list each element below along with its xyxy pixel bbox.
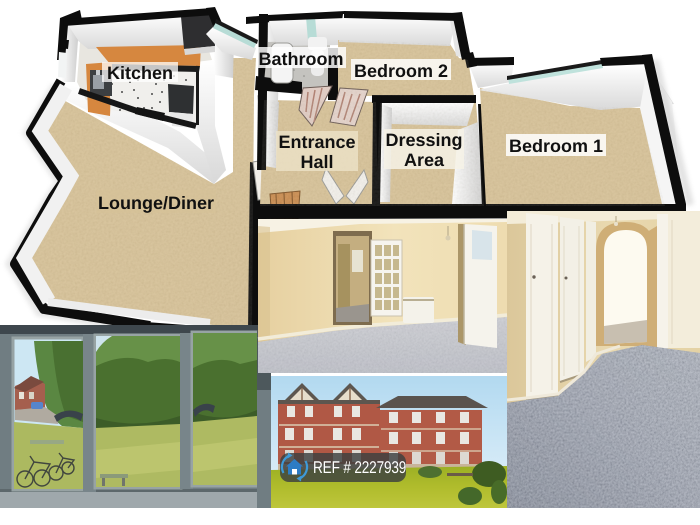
- svg-text:Kitchen: Kitchen: [107, 63, 173, 83]
- svg-text:Area: Area: [404, 150, 445, 170]
- svg-text:Dressing: Dressing: [385, 130, 462, 150]
- svg-text:Bathroom: Bathroom: [259, 49, 344, 69]
- svg-text:Bedroom 1: Bedroom 1: [509, 136, 603, 156]
- svg-text:Bedroom 2: Bedroom 2: [354, 61, 448, 81]
- svg-text:Hall: Hall: [300, 152, 333, 172]
- svg-text:Entrance: Entrance: [278, 132, 355, 152]
- svg-text:REF # 2227939: REF # 2227939: [313, 458, 406, 477]
- svg-text:Lounge/Diner: Lounge/Diner: [98, 193, 214, 213]
